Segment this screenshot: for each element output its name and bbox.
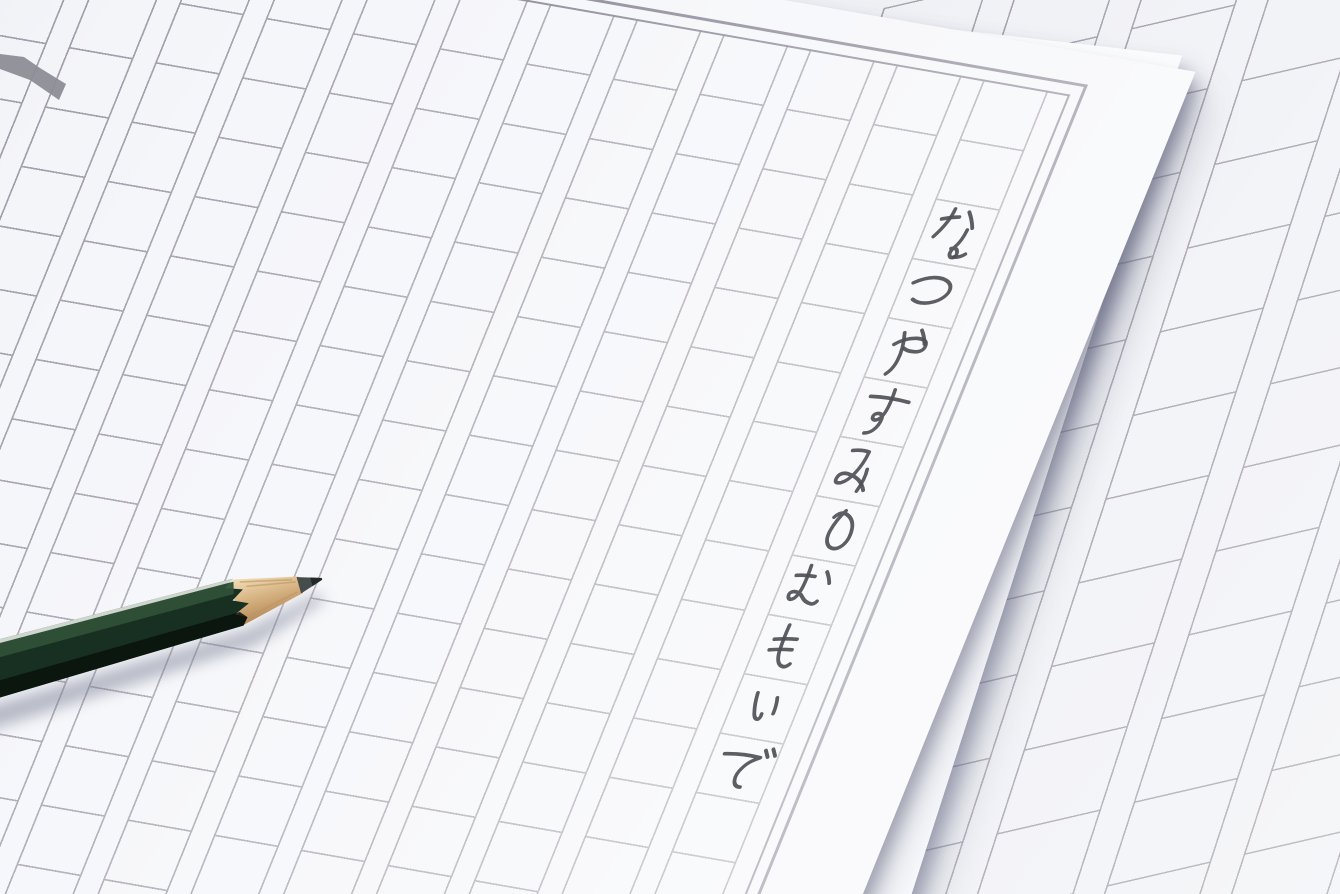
handwritten-char — [844, 376, 928, 447]
handwritten-char — [888, 257, 972, 327]
handwritten-char — [699, 733, 782, 803]
handwritten-char — [795, 496, 877, 565]
handwritten-char — [771, 554, 855, 625]
handwritten-char — [867, 318, 949, 386]
handwritten-char — [722, 673, 806, 743]
handwritten-char — [818, 436, 901, 506]
handwritten-char — [745, 614, 827, 682]
handwritten-char — [916, 200, 998, 268]
photo-stage — [0, 0, 1340, 894]
